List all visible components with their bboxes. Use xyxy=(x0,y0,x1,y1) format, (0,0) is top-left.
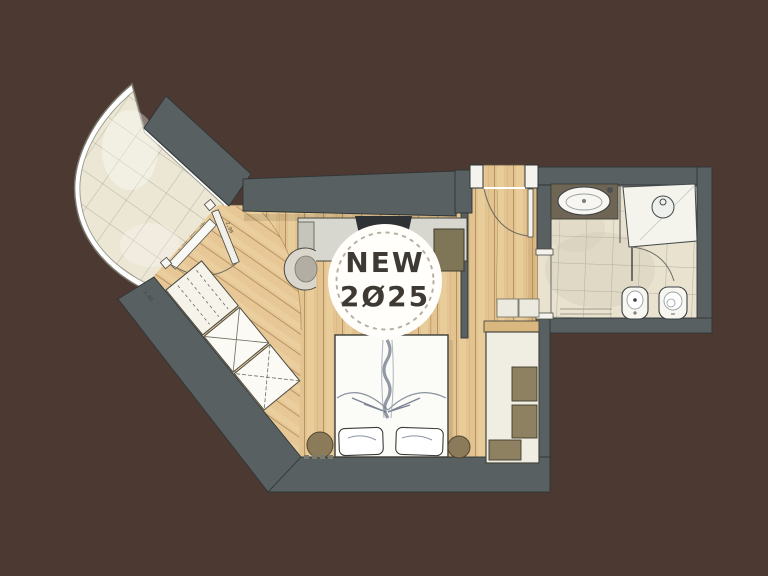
double-bed xyxy=(335,335,453,458)
entry-door-post-right xyxy=(525,165,538,188)
bidet-drain xyxy=(633,298,637,302)
badge-line-1: NEW xyxy=(345,246,424,279)
wall-bathroom-left-upper xyxy=(537,185,551,253)
toilet-bowl xyxy=(664,292,682,310)
new-2025-badge: NEW 2Ø25 xyxy=(328,224,442,338)
round-stool-left xyxy=(307,432,333,458)
toilet xyxy=(659,287,687,319)
floor-plan-image: 2,00 2,00 NEW 2Ø25 xyxy=(0,0,768,576)
entry-door-leaf xyxy=(528,189,533,237)
wall-bathroom-bottom xyxy=(539,318,712,333)
luggage-box-1 xyxy=(497,299,518,317)
floor-plan-svg: 2,00 2,00 NEW 2Ø25 xyxy=(0,0,768,576)
pillow-left xyxy=(339,427,384,456)
armchair-seat xyxy=(295,256,317,282)
bench-cushion-3 xyxy=(489,440,521,460)
wall-top xyxy=(243,171,456,216)
badge-line-2: 2Ø25 xyxy=(340,280,430,313)
bench-cushion-2 xyxy=(512,405,537,438)
entry-door-post-left xyxy=(470,165,483,188)
wall-bathroom-top xyxy=(537,167,712,185)
bathroom-door-jamb-top xyxy=(536,249,553,255)
bench-shelf xyxy=(484,321,539,332)
faucet xyxy=(607,187,613,193)
round-stool-right xyxy=(448,436,470,458)
sink-drain xyxy=(582,199,586,203)
luggage-box-2 xyxy=(519,299,539,317)
wall-bathroom-right xyxy=(697,167,712,333)
wall-entry-left xyxy=(455,170,472,213)
bench-cushion-1 xyxy=(512,367,537,401)
pillow-right xyxy=(396,427,444,456)
bidet xyxy=(622,287,648,319)
daybed-bench xyxy=(484,299,539,463)
